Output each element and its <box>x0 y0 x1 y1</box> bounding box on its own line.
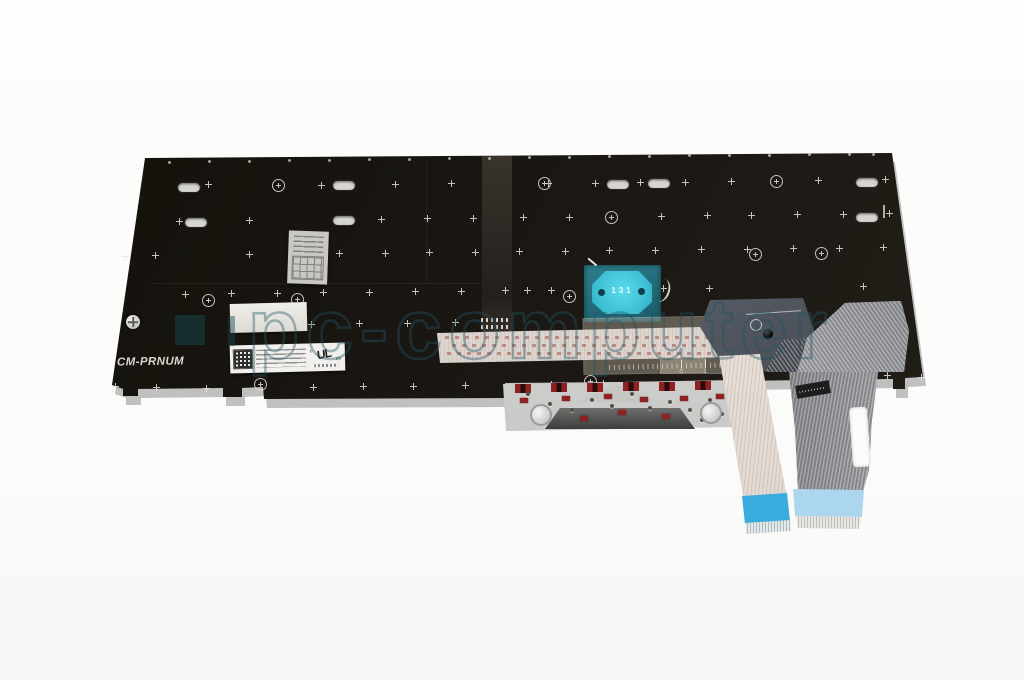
fiducial-cross <box>392 181 399 188</box>
standoff-slot <box>648 179 670 188</box>
fiducial-cross <box>704 212 711 219</box>
fiducial-cross <box>246 217 253 224</box>
fiducial-cross <box>562 248 569 255</box>
edge-dot <box>872 153 875 156</box>
edge-dot <box>808 153 811 156</box>
fiducial-cross <box>153 384 160 391</box>
standoff-slot <box>185 218 207 227</box>
edge-dot <box>528 156 531 159</box>
fiducial-cross <box>470 215 477 222</box>
fiducial-cross <box>592 180 599 187</box>
edge-dot <box>728 154 731 157</box>
fiducial-cross <box>448 180 455 187</box>
fiducial-cross <box>122 253 129 260</box>
fiducial-cross <box>472 249 479 256</box>
fiducial-cross <box>378 216 385 223</box>
screw-callout-icon <box>202 294 215 307</box>
watermark-logo-block <box>175 315 205 345</box>
screw-callout-icon <box>254 378 267 391</box>
fiducial-cross <box>176 218 183 225</box>
fiducial-cross <box>794 211 801 218</box>
standoff-slot <box>333 181 355 190</box>
edge-dot <box>608 155 611 158</box>
edge-dot <box>648 155 651 158</box>
screw-callout-icon <box>770 175 783 188</box>
plate-mark <box>883 205 885 218</box>
fiducial-cross <box>182 291 189 298</box>
edge-dot <box>848 153 851 156</box>
fiducial-cross <box>520 214 527 221</box>
edge-dot <box>168 161 171 164</box>
edge-dot <box>448 157 451 160</box>
fiducial-cross <box>410 383 417 390</box>
fiducial-cross <box>880 244 887 251</box>
edge-dot <box>768 154 771 157</box>
fiducial-cross <box>886 210 893 217</box>
fiducial-cross <box>462 382 469 389</box>
standoff-slot <box>856 178 878 187</box>
edge-dot <box>408 158 411 161</box>
label-grid-table <box>291 255 324 280</box>
edge-dot <box>208 160 211 163</box>
fiducial-cross <box>836 245 843 252</box>
watermark-logo-stem <box>228 316 235 346</box>
standoff-slot <box>607 180 629 189</box>
edge-dot <box>248 160 251 163</box>
fiducial-cross <box>748 212 755 219</box>
fiducial-cross <box>658 213 665 220</box>
fiducial-cross <box>918 374 925 381</box>
screw-callout-icon <box>749 248 762 261</box>
fiducial-cross <box>682 179 689 186</box>
edge-dot <box>368 158 371 161</box>
fiducial-cross <box>815 177 822 184</box>
fiducial-cross <box>840 211 847 218</box>
fiducial-cross <box>516 248 523 255</box>
edge-dot <box>488 157 491 160</box>
screw <box>126 315 140 329</box>
fiducial-cross <box>318 182 325 189</box>
fiducial-cross <box>728 178 735 185</box>
fiducial-cross <box>637 179 644 186</box>
fiducial-cross <box>606 247 613 254</box>
fiducial-cross <box>203 385 210 392</box>
fiducial-cross <box>112 383 119 390</box>
watermark-text: pc-computer <box>248 281 834 378</box>
screw-callout-icon <box>272 179 285 192</box>
fiducial-cross <box>424 215 431 222</box>
screw-callout-icon <box>815 247 828 260</box>
fiducial-cross <box>360 383 367 390</box>
fiducial-cross <box>860 283 867 290</box>
fiducial-cross <box>152 252 159 259</box>
fiducial-cross <box>336 250 343 257</box>
standoff-slot <box>333 216 355 225</box>
standoff-slot <box>178 183 200 192</box>
fiducial-cross <box>790 245 797 252</box>
fiducial-cross <box>426 249 433 256</box>
fiducial-cross <box>246 251 253 258</box>
fiducial-cross <box>310 384 317 391</box>
edge-dot <box>328 159 331 162</box>
micro-text-lines <box>293 235 324 253</box>
fiducial-cross <box>382 250 389 257</box>
standoff-slot <box>856 213 878 222</box>
fiducial-cross <box>698 246 705 253</box>
fiducial-cross <box>652 247 659 254</box>
keyboard-backside-photo: c UL us CM-PRNUM 131 012345678 <box>0 0 1024 680</box>
screw-callout-icon <box>538 177 551 190</box>
fiducial-cross <box>205 181 212 188</box>
plate-marking-text: CM-PRNUM <box>117 355 184 368</box>
edge-dot <box>288 159 291 162</box>
fiducial-cross <box>228 290 235 297</box>
grid-label <box>287 230 329 284</box>
fiducial-cross <box>882 176 889 183</box>
edge-dot <box>568 156 571 159</box>
fiducial-cross <box>566 214 573 221</box>
edge-dot <box>688 154 691 157</box>
screw-callout-icon <box>605 211 618 224</box>
